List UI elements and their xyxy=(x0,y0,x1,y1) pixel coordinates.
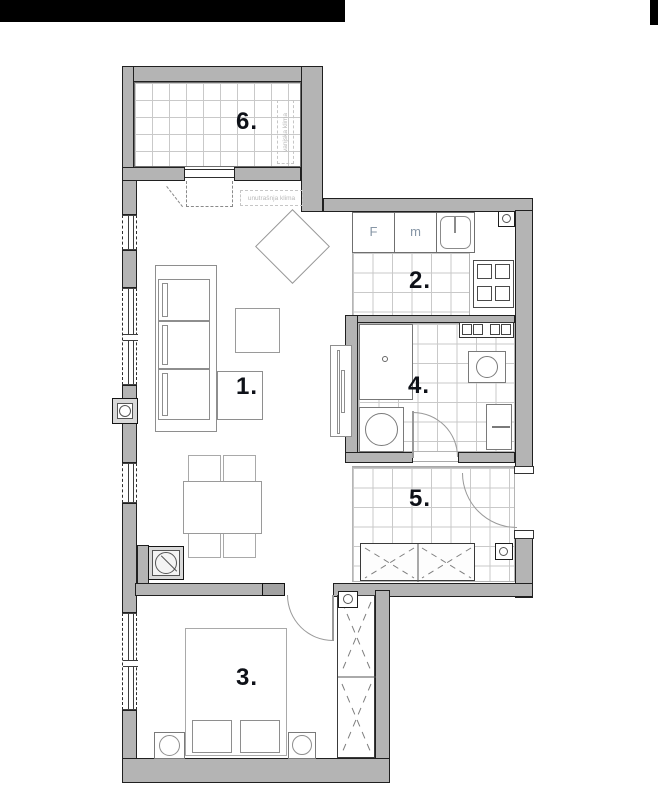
radiator-cell xyxy=(501,324,511,335)
toilet-unit-handle xyxy=(492,426,510,428)
wall-bathroom-bottom-right xyxy=(458,452,515,463)
wall-bedroom-divider-cap xyxy=(262,583,285,596)
wall-kitchen-top xyxy=(323,198,533,212)
sofa-cushion-stripe xyxy=(162,283,168,317)
hallway-vent-circle xyxy=(499,547,508,556)
top-bar-right xyxy=(650,0,658,25)
indoor-ac-label: unutrašnja klima xyxy=(240,190,303,206)
dining-table xyxy=(183,481,262,534)
wall-balcony-left xyxy=(122,66,134,180)
kitchen-corner-vent-circle xyxy=(502,214,511,223)
radiator-cell xyxy=(462,324,472,335)
wall-right-upper xyxy=(515,210,533,473)
closet-x-pattern xyxy=(361,544,476,582)
balcony-door-swing-diagonal xyxy=(166,186,183,207)
window-glass xyxy=(128,464,134,502)
dining-chair xyxy=(223,533,256,558)
room-number-bedroom: 3. xyxy=(236,664,258,692)
window-bedroom xyxy=(122,613,137,710)
room-number-bathroom: 4. xyxy=(408,372,430,400)
balcony-door-swing xyxy=(186,181,233,207)
window-living-2 xyxy=(122,288,137,385)
nightstand-lamp xyxy=(292,735,312,755)
appliance-m-label: m xyxy=(394,224,437,239)
bathroom-sink-bowl xyxy=(476,356,498,378)
entrance-jamb-top xyxy=(514,466,534,474)
balcony-floor xyxy=(134,82,301,167)
shaft-symbol-circle xyxy=(155,552,177,574)
bed-pillow xyxy=(240,720,280,753)
radiator-cell xyxy=(490,324,500,335)
stove-burner xyxy=(477,264,492,279)
floor-plan: vanjska klima unutrašnja klima F m xyxy=(0,0,658,790)
wall-bedroom-right xyxy=(375,590,390,760)
wall-balcony-top xyxy=(122,66,323,82)
dining-chair xyxy=(188,455,221,483)
wall-balcony-bottom-right xyxy=(234,167,301,181)
sofa-cushion-stripe xyxy=(162,373,168,416)
wardrobe xyxy=(337,595,375,758)
shower-drain xyxy=(382,356,388,362)
room-number-kitchen: 2. xyxy=(409,267,431,295)
hallway-closet xyxy=(360,543,475,581)
window-mullion xyxy=(123,334,138,341)
room-number-balcony: 6. xyxy=(236,108,258,136)
radiator-cell xyxy=(473,324,483,335)
stove-burner xyxy=(495,286,510,301)
coffee-table xyxy=(235,308,280,353)
wall-balcony-right xyxy=(301,66,323,212)
bedroom-door-arc xyxy=(287,595,333,641)
nightstand-lamp xyxy=(159,735,180,756)
tv-screen xyxy=(337,350,340,434)
dining-chair xyxy=(223,455,256,483)
wall-balcony-bottom-left xyxy=(122,167,185,181)
room-number-living: 1. xyxy=(236,373,258,401)
window-living-1 xyxy=(122,215,137,250)
sofa-cushion-stripe xyxy=(162,325,168,365)
balcony-door xyxy=(185,169,234,178)
wall-left-4 xyxy=(122,503,137,613)
wardrobe-x-pattern xyxy=(338,596,376,759)
wall-left-1 xyxy=(122,180,137,215)
decor-diamond xyxy=(255,209,330,284)
kitchen-sink-tap xyxy=(454,217,456,233)
window-mullion xyxy=(123,660,138,667)
shower xyxy=(359,324,413,400)
window-glass xyxy=(128,216,134,249)
bedroom-vent-circle xyxy=(343,594,353,604)
room-number-hallway: 5. xyxy=(409,485,431,513)
facade-box-circle xyxy=(119,405,131,417)
wall-left-3 xyxy=(122,385,137,463)
floor-plan-page: { "rooms": [ {"number": "1.", "name": "l… xyxy=(0,0,658,790)
wall-left-2 xyxy=(122,250,137,288)
wall-bedroom-bottom xyxy=(122,758,390,783)
window-living-3 xyxy=(122,463,137,503)
fridge-label: F xyxy=(352,224,395,239)
outdoor-ac-label: vanjska klima xyxy=(277,100,294,164)
stove-burner xyxy=(495,264,510,279)
tv-screen-inner xyxy=(341,370,345,413)
entrance-jamb-bottom xyxy=(514,530,534,539)
top-bar-left xyxy=(0,0,345,22)
stove-burner xyxy=(477,286,492,301)
dining-chair xyxy=(188,533,221,558)
washing-machine-drum xyxy=(365,413,398,446)
wall-bathroom-bottom-left xyxy=(345,452,413,463)
bed-pillow xyxy=(192,720,232,753)
